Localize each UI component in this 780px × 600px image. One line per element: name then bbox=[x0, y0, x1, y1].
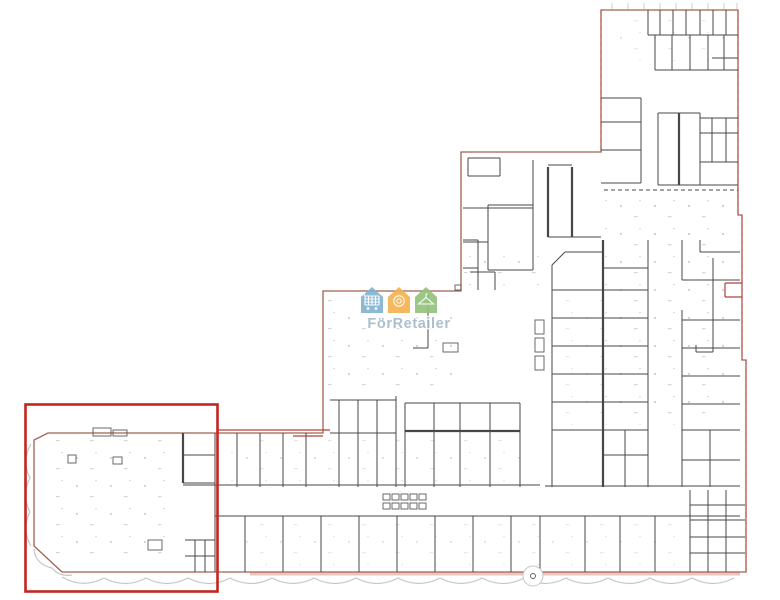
drawing-viewport: FörRetailer bbox=[0, 0, 780, 600]
watermark-brand-text: FörRetailer bbox=[367, 316, 450, 332]
entrance-circle bbox=[523, 566, 543, 586]
dimension-ticks bbox=[612, 3, 737, 9]
floor-plan-canvas: FörRetailer bbox=[0, 0, 780, 600]
